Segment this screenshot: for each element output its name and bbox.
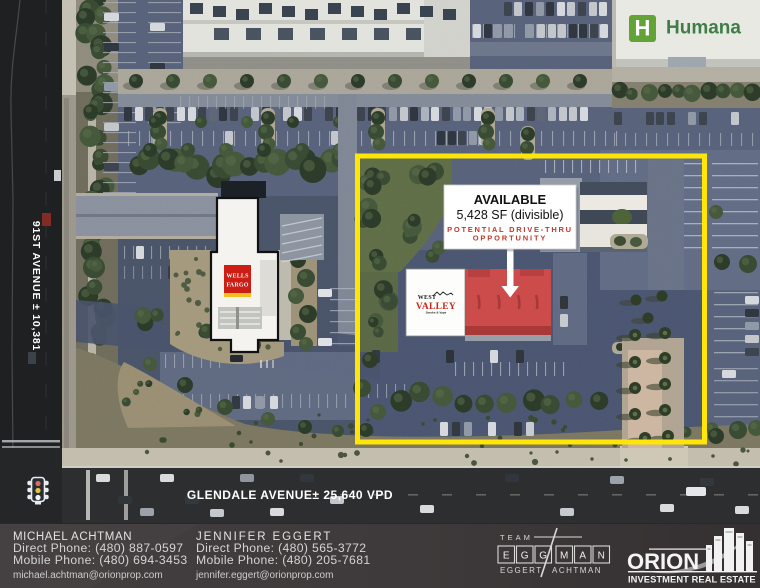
svg-text:FARGO: FARGO [226,283,248,289]
svg-text:ACHTMAN: ACHTMAN [552,566,602,575]
svg-text:N: N [598,551,605,562]
svg-text:E: E [503,551,510,562]
svg-text:Mobile Phone: (480) 694-3453: Mobile Phone: (480) 694-3453 [13,553,187,567]
svg-text:5,428 SF (divisible): 5,428 SF (divisible) [457,208,564,222]
svg-text:AVAILABLE: AVAILABLE [474,192,547,207]
svg-text:TEAM: TEAM [500,533,533,542]
svg-text:WEST: WEST [418,295,437,301]
svg-text:jennifer.eggert@orionprop.com: jennifer.eggert@orionprop.com [195,570,333,581]
svg-text:A: A [579,551,586,562]
svg-text:M: M [560,551,568,562]
svg-text:INVESTMENT REAL ESTATE: INVESTMENT REAL ESTATE [628,575,756,585]
svg-text:G: G [521,551,529,562]
svg-text:Mobile Phone: (480) 205-7681: Mobile Phone: (480) 205-7681 [196,553,370,567]
svg-text:WELLS: WELLS [226,274,249,280]
svg-text:91ST AVENUE ± 10,381: 91ST AVENUE ± 10,381 [30,221,42,351]
svg-text:OPPORTUNITY: OPPORTUNITY [473,234,548,243]
svg-text:ORION: ORION [627,549,699,574]
svg-text:EGGERT: EGGERT [500,566,543,575]
svg-text:Smoke & Vape: Smoke & Vape [426,311,447,315]
svg-text:GLENDALE AVENUE± 25,640 VPD: GLENDALE AVENUE± 25,640 VPD [187,488,393,502]
svg-text:michael.achtman@orionprop.com: michael.achtman@orionprop.com [13,570,163,581]
